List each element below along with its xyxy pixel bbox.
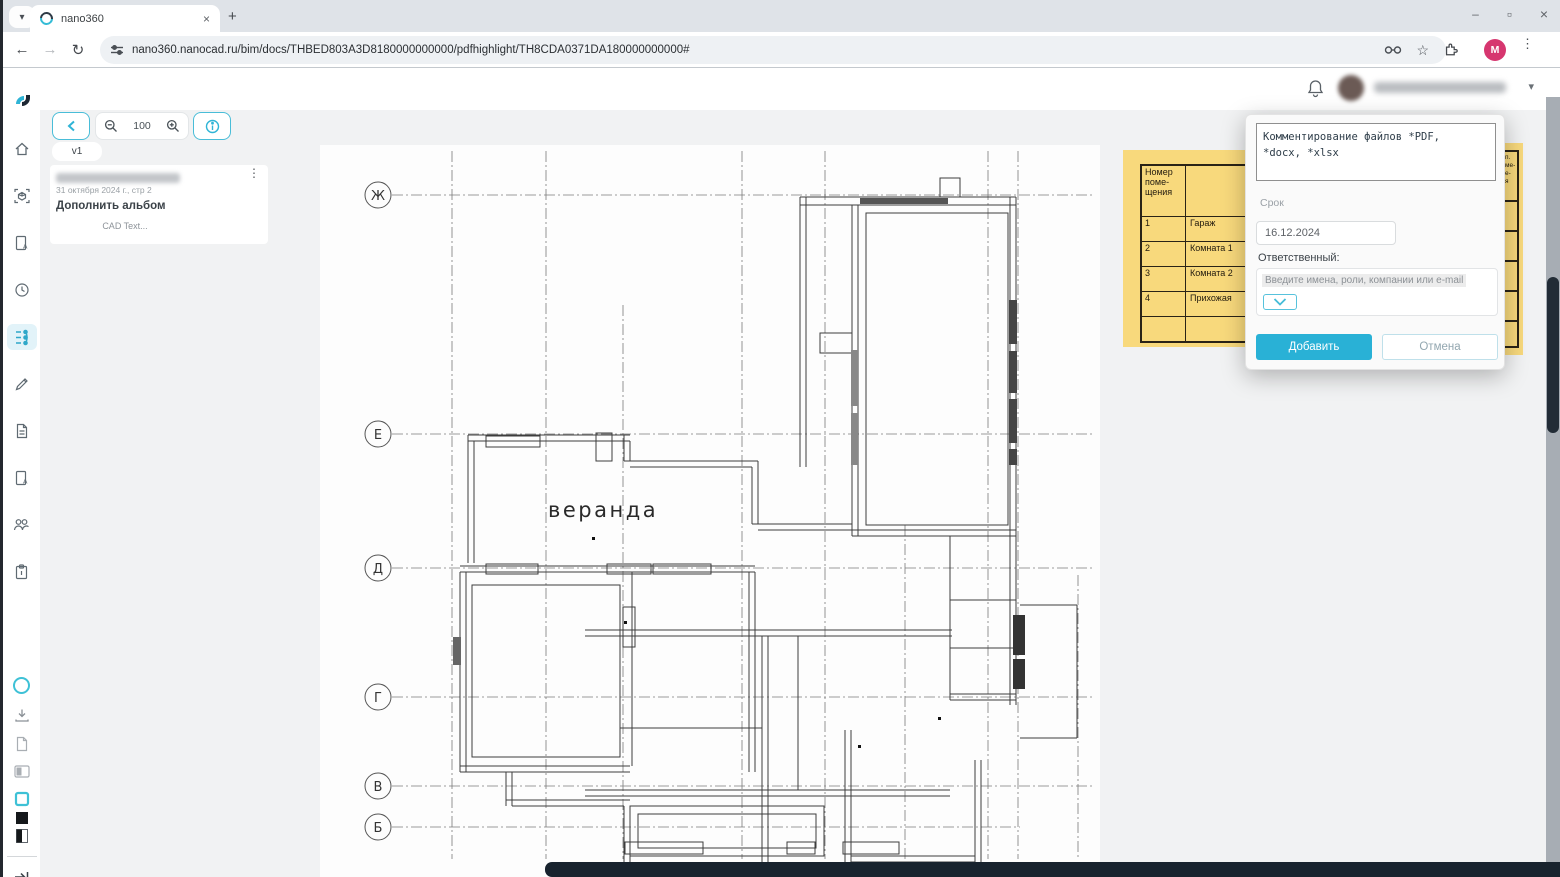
document-a-icon: A bbox=[14, 235, 30, 251]
user-menu-chevron-icon[interactable]: ▾ bbox=[1528, 80, 1534, 93]
add-button[interactable]: Добавить bbox=[1256, 334, 1372, 360]
assignee-label: Ответственный: bbox=[1258, 252, 1340, 264]
tab-title: nano360 bbox=[61, 13, 195, 25]
tab-strip: ▾ nano360 × + – ▫ × bbox=[0, 0, 1560, 32]
layout-panel-icon[interactable] bbox=[14, 765, 30, 778]
divider bbox=[7, 856, 37, 857]
password-manager-icon[interactable] bbox=[1384, 44, 1402, 56]
document-card[interactable]: ⋮ 31 октября 2024 г., стр 2 Дополнить ал… bbox=[50, 165, 268, 244]
comment-textarea[interactable]: Комментирование файлов *PDF, *docx, *xls… bbox=[1256, 123, 1496, 181]
forward-button[interactable]: → bbox=[36, 41, 64, 58]
minimize-button[interactable]: – bbox=[1472, 7, 1479, 21]
restore-button[interactable]: ▫ bbox=[1507, 6, 1512, 22]
clock-icon bbox=[14, 282, 30, 298]
sidebar-item-documents[interactable]: A bbox=[7, 230, 37, 256]
browser-window: ▾ nano360 × + – ▫ × ← → ↻ nano360.nanoca… bbox=[0, 0, 1560, 877]
url-text[interactable]: nano360.nanocad.ru/bim/docs/THBED803A3D8… bbox=[132, 44, 1377, 56]
due-date-label: Срок bbox=[1260, 197, 1284, 209]
info-button[interactable] bbox=[193, 112, 231, 140]
bottom-dark-bar[interactable] bbox=[545, 862, 1560, 877]
room-table: Номер поме- щения 1 Гараж 2 Комната 1 3 … bbox=[1140, 164, 1255, 343]
room-label-veranda: веранда bbox=[548, 498, 658, 522]
zoom-level-value[interactable]: 100 bbox=[133, 120, 151, 132]
user-name-blurred bbox=[1374, 82, 1506, 93]
pencil-icon bbox=[14, 376, 30, 392]
zoom-controls: 100 bbox=[95, 112, 189, 140]
address-bar[interactable]: nano360.nanocad.ru/bim/docs/THBED803A3D8… bbox=[100, 36, 1446, 64]
assignee-input[interactable]: Введите имена, роли, компании или e-mail bbox=[1256, 268, 1498, 316]
browser-tab[interactable]: nano360 × bbox=[30, 5, 220, 32]
notifications-bell-icon[interactable] bbox=[1307, 79, 1324, 98]
document-action-title: Дополнить альбом bbox=[56, 200, 166, 212]
axis-label: В bbox=[374, 780, 383, 795]
table-row: 2 Комната 1 bbox=[1142, 241, 1255, 266]
site-info-icon[interactable] bbox=[110, 43, 124, 57]
vertical-scrollbar[interactable] bbox=[1546, 97, 1560, 862]
window-edge bbox=[0, 0, 3, 877]
page-back-button[interactable] bbox=[52, 112, 90, 140]
floor-plan-svg: Ж Е Д Г В Б bbox=[320, 145, 1100, 877]
svg-text:A: A bbox=[23, 243, 28, 251]
back-button[interactable]: ← bbox=[8, 41, 36, 58]
sidebar-item-model[interactable] bbox=[7, 183, 37, 209]
browser-toolbar: ← → ↻ nano360.nanocad.ru/bim/docs/THBED8… bbox=[0, 32, 1560, 68]
assignee-dropdown-button[interactable] bbox=[1263, 294, 1297, 310]
info-icon bbox=[205, 119, 220, 134]
document-subtitle: CAD Text... bbox=[50, 221, 200, 231]
axis-label: Б bbox=[374, 821, 383, 836]
sidebar-item-markup[interactable] bbox=[7, 371, 37, 397]
sidebar-item-home[interactable] bbox=[7, 136, 37, 162]
axis-label: Г bbox=[374, 691, 382, 706]
chrome-profile-avatar[interactable]: M bbox=[1484, 39, 1506, 61]
zoom-out-icon[interactable] bbox=[104, 119, 118, 133]
table-row: 4 Прихожая bbox=[1142, 291, 1255, 316]
room-table-header: Номер поме- щения bbox=[1142, 166, 1186, 216]
color-swatch-split-icon[interactable] bbox=[16, 829, 28, 843]
nano360-favicon-icon bbox=[37, 9, 55, 27]
table-fragment-text: п. ме- е- я bbox=[1503, 152, 1517, 186]
svg-text:A: A bbox=[23, 478, 28, 486]
chrome-menu-button[interactable]: ⋮ bbox=[1521, 41, 1534, 47]
reload-button[interactable]: ↻ bbox=[64, 41, 92, 59]
comment-dialog: Комментирование файлов *PDF, *docx, *xls… bbox=[1245, 114, 1505, 370]
sidebar-item-history[interactable] bbox=[7, 277, 37, 303]
close-window-button[interactable]: × bbox=[1540, 6, 1548, 22]
nano360-logo[interactable] bbox=[12, 90, 34, 112]
clipboard-icon bbox=[14, 564, 29, 580]
download-icon[interactable] bbox=[14, 708, 30, 723]
scrollbar-corner bbox=[1546, 862, 1560, 877]
document-title-blurred bbox=[56, 173, 180, 183]
status-circle-icon[interactable] bbox=[12, 676, 31, 695]
sidebar-item-structure-active[interactable] bbox=[7, 324, 37, 350]
window-hatches bbox=[453, 198, 1025, 748]
color-swatch-black-icon[interactable] bbox=[15, 811, 29, 825]
collapse-panel-icon[interactable] bbox=[14, 870, 30, 877]
close-tab-icon[interactable]: × bbox=[203, 12, 210, 26]
sidebar-item-files[interactable] bbox=[7, 418, 37, 444]
table-row bbox=[1142, 316, 1255, 341]
user-avatar[interactable] bbox=[1338, 75, 1364, 101]
sidebar-item-team[interactable] bbox=[7, 512, 37, 538]
axis-label: Е bbox=[374, 428, 382, 443]
axis-label: Ж bbox=[371, 189, 385, 204]
pdf-drawing-canvas[interactable]: Ж Е Д Г В Б bbox=[320, 145, 1100, 877]
document-check-icon: A bbox=[14, 470, 30, 486]
version-tab-v1[interactable]: v1 bbox=[52, 142, 102, 161]
cube-scan-icon bbox=[14, 188, 30, 204]
assignee-placeholder: Введите имена, роли, компании или e-mail bbox=[1262, 274, 1466, 287]
highlighted-room-table[interactable]: Номер поме- щения 1 Гараж 2 Комната 1 3 … bbox=[1123, 150, 1255, 347]
scrollbar-thumb[interactable] bbox=[1547, 277, 1559, 433]
table-row: 1 Гараж bbox=[1142, 216, 1255, 241]
axis-label: Д bbox=[373, 562, 383, 577]
users-icon bbox=[13, 517, 30, 533]
card-menu-button[interactable]: ⋮ bbox=[248, 171, 260, 176]
grid-lines bbox=[392, 151, 1092, 859]
home-icon bbox=[14, 141, 30, 157]
new-tab-button[interactable]: + bbox=[228, 8, 237, 25]
cancel-button[interactable]: Отмена bbox=[1382, 334, 1498, 360]
bookmark-star-icon[interactable]: ☆ bbox=[1416, 42, 1429, 59]
zoom-in-icon[interactable] bbox=[166, 119, 180, 133]
chevron-down-icon: ▾ bbox=[19, 12, 24, 23]
hierarchy-icon bbox=[13, 329, 30, 346]
color-swatch-teal-icon[interactable] bbox=[14, 791, 30, 807]
axis-bubbles bbox=[365, 182, 391, 840]
sidebar-item-tasks[interactable] bbox=[7, 559, 37, 585]
table-row: 3 Комната 2 bbox=[1142, 266, 1255, 291]
chevron-left-icon bbox=[67, 120, 76, 132]
app-header: ▾ bbox=[3, 68, 1546, 110]
file-icon bbox=[14, 423, 30, 439]
app-sidebar: A A bbox=[3, 68, 40, 877]
sidebar-item-approvals[interactable]: A bbox=[7, 465, 37, 491]
chevron-down-icon bbox=[1273, 298, 1287, 306]
due-date-input[interactable] bbox=[1256, 221, 1396, 245]
document-date: 31 октября 2024 г., стр 2 bbox=[56, 185, 152, 195]
page-icon[interactable] bbox=[15, 736, 29, 752]
extensions-icon[interactable] bbox=[1444, 42, 1460, 58]
